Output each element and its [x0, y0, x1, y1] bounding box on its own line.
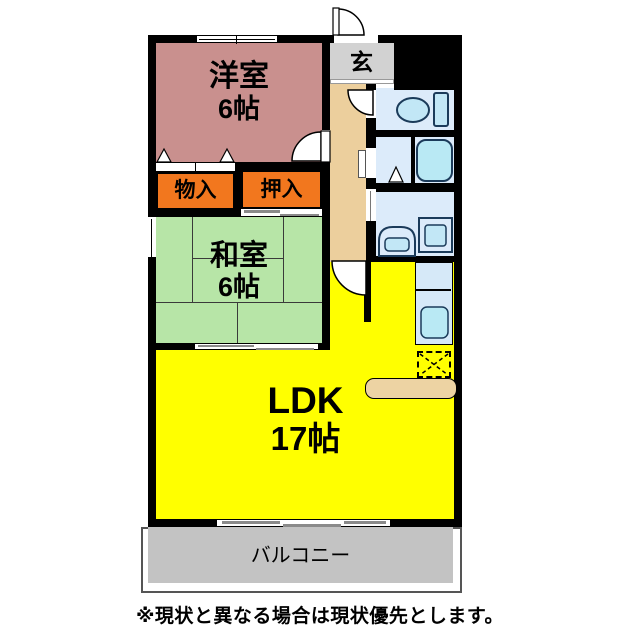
disclaimer-note: ※現状と異なる場合は現状優先とします。 — [0, 606, 640, 627]
label-japanese-room: 和室 6帖 — [156, 240, 322, 303]
western-door-swing — [292, 132, 321, 161]
label-entrance: 玄 — [329, 50, 394, 76]
bath-door-triangle — [389, 167, 403, 182]
ldk-door-swing — [332, 261, 366, 295]
toilet-door-swing — [348, 90, 373, 115]
label-balcony: バルコニー — [148, 545, 453, 567]
toilet-tank-icon — [434, 93, 448, 126]
western-door-leaf — [321, 131, 330, 162]
western-room-size: 6帖 — [156, 94, 322, 124]
entry-door-swing — [338, 9, 364, 35]
label-western-room: 洋室 6帖 — [156, 60, 322, 124]
japanese-room-size: 6帖 — [156, 272, 322, 302]
monoire-door-triangle — [220, 149, 234, 162]
entry-door-leaf — [333, 8, 339, 35]
bathtub-icon — [417, 140, 452, 181]
toilet-icon — [397, 98, 429, 122]
kitchen-sink-icon — [421, 307, 448, 338]
japanese-room-name: 和室 — [156, 240, 322, 272]
washbasin-bowl-icon — [385, 238, 409, 251]
ldk-size: 17帖 — [156, 421, 455, 458]
label-monoire: 物入 — [156, 179, 235, 203]
label-ldk: LDK 17帖 — [156, 380, 455, 458]
ldk-name: LDK — [156, 380, 455, 421]
monoire-door-triangle — [157, 149, 171, 162]
western-room-name: 洋室 — [156, 60, 322, 94]
floorplan-canvas: 洋室 6帖 物入 押入 和室 6帖 LDK 17帖 玄 バルコニー ※現状と異な… — [0, 0, 640, 640]
label-oshiire: 押入 — [241, 178, 322, 202]
washing-machine-icon — [425, 225, 446, 246]
